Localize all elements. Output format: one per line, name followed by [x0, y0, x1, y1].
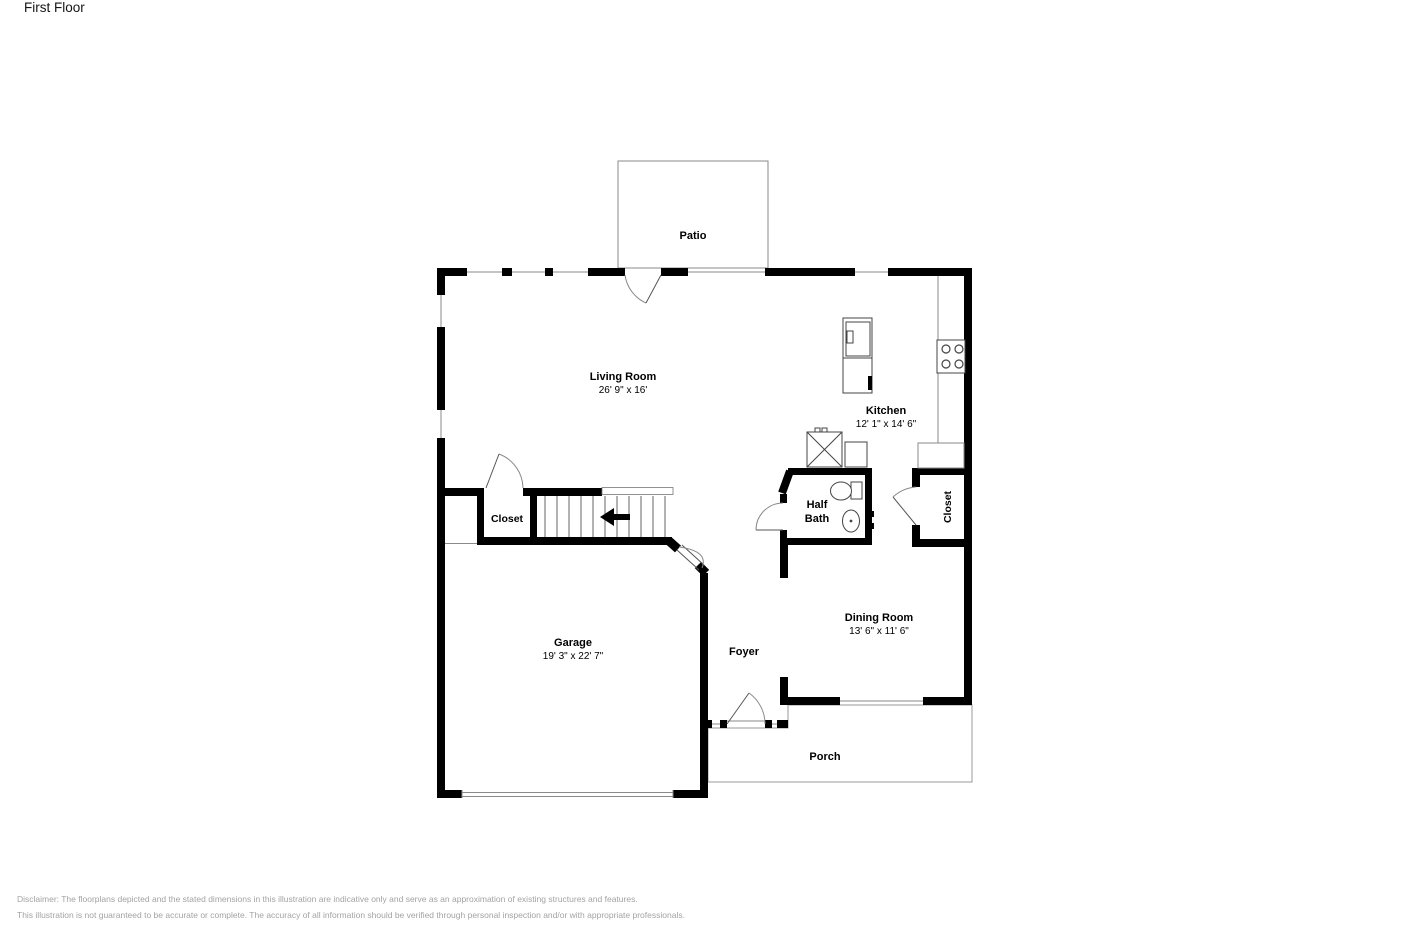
patio-door: [625, 275, 661, 303]
floorplan-page: First Floor: [0, 0, 1414, 950]
living-room-label: Living Room 26' 9" x 16': [590, 370, 657, 398]
dining-room-label: Dining Room 13' 6" x 11' 6": [845, 611, 913, 639]
kitchen-dimensions: 12' 1" x 14' 6": [856, 418, 916, 432]
half-bath-door: [756, 503, 783, 530]
right-closet-label: Closet: [941, 491, 955, 523]
kitchen-label: Kitchen 12' 1" x 14' 6": [856, 404, 916, 432]
disclaimer-line-1: Disclaimer: The floorplans depicted and …: [17, 894, 638, 904]
foyer-label: Foyer: [729, 645, 759, 659]
dishwasher-icon: [845, 442, 867, 467]
garage-dimensions: 19' 3" x 22' 7": [543, 650, 603, 664]
left-closet-label: Closet: [491, 512, 523, 526]
left-closet-door: [486, 454, 523, 488]
stairs-railing: [602, 488, 673, 495]
faucet-handle-icon: [865, 511, 874, 517]
refrigerator-icon: [843, 318, 872, 393]
stove-icon: [937, 340, 965, 373]
disclaimer-line-2: This illustration is not guaranteed to b…: [17, 910, 685, 920]
porch-label: Porch: [809, 750, 840, 764]
porch-outline: [708, 705, 972, 782]
half-bath-label: Half Bath: [805, 498, 829, 526]
faucet-handle-icon: [865, 523, 874, 529]
toilet-icon: [831, 482, 863, 500]
diagonal-walls: [669, 471, 790, 573]
patio-label: Patio: [680, 229, 707, 243]
exterior-walls: [437, 268, 972, 798]
right-closet-door: [893, 487, 916, 525]
garage-label: Garage 19' 3" x 22' 7": [543, 636, 603, 664]
front-entry-door: [727, 693, 765, 724]
kitchen-sink-icon: [807, 428, 842, 467]
living-room-dimensions: 26' 9" x 16': [590, 384, 657, 398]
dining-room-dimensions: 13' 6" x 11' 6": [845, 625, 913, 639]
patio-outline: [618, 161, 768, 268]
floorplan-drawing: [0, 0, 1414, 950]
garage-door: [462, 790, 673, 798]
